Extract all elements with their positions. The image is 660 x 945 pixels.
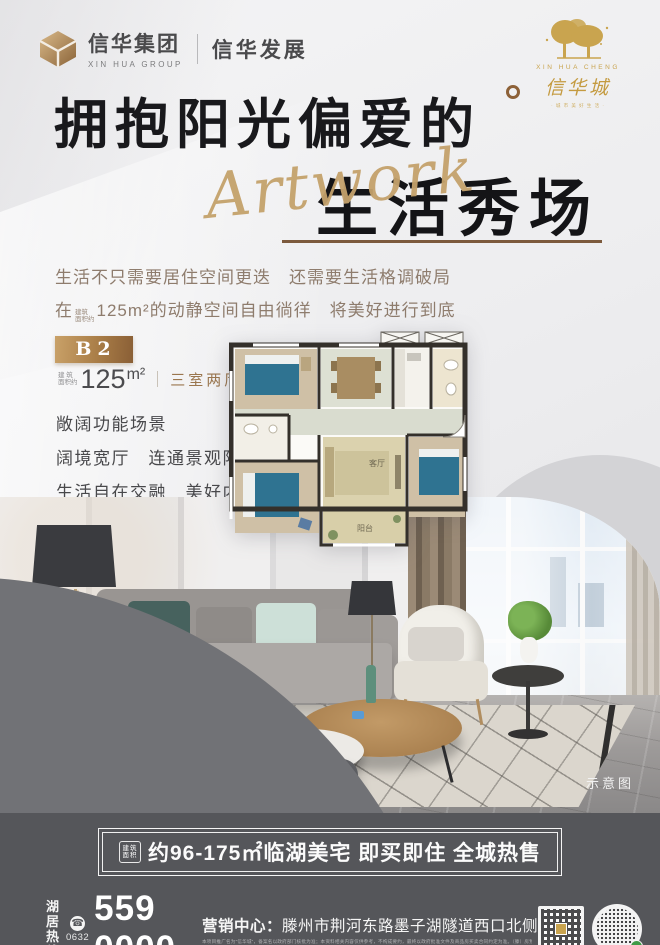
intro-line1: 生活不只需要居住空间更迭 还需要生活格调破局 [55, 261, 456, 294]
bedroom-bottom-right [409, 437, 465, 517]
sales-banner: 建筑 面积 约96-175㎡临湖美宅 即买即住 全城热售 [98, 828, 562, 876]
area-badge: 建筑 面积 [119, 841, 141, 863]
group-name-en: XIN HUA GROUP [88, 60, 183, 69]
area-note: 建 筑 面积约 [58, 372, 78, 386]
floor-lamp [32, 525, 116, 587]
project-name-en: XIN HUA CHENG [518, 64, 638, 71]
dining-area [321, 349, 391, 407]
sales-office-address: 滕州市荆河东路墨子湖隧道西口北侧 [282, 918, 538, 935]
gold-trees-icon [535, 14, 621, 64]
division-name: 信华发展 [212, 34, 308, 64]
project-name: 信华城 [518, 73, 638, 100]
poster-page: 信华集团 XIN HUA GROUP 信华发展 XIN HUA CHENG 信华 [0, 0, 660, 945]
living-room: 客厅 [323, 437, 405, 509]
floorplan: 客厅 阳台 [229, 331, 473, 549]
project-tagline: · 城 市 美 好 生 活 · [518, 103, 638, 109]
bathroom-left [235, 417, 289, 459]
small-floor-lamp [348, 581, 396, 615]
group-logo-icon [38, 29, 78, 69]
sales-office-label: 营销中心： [202, 918, 282, 935]
group-name-block: 信华集团 XIN HUA GROUP [88, 28, 183, 69]
floorplan-drawing: 客厅 阳台 [229, 331, 473, 549]
area-code: 0632 [66, 932, 89, 943]
unit-area-value: 125 [81, 364, 126, 395]
hotline-number: 559 0000 [94, 889, 176, 945]
bathroom-top-right [433, 349, 465, 407]
balcony: 阳台 [323, 511, 407, 543]
logo-divider [197, 34, 198, 64]
intro-line2: 在 建筑 面积约 125m² 的动静空间自由徜徉 将美好进行到底 [55, 294, 456, 327]
sales-banner-text: 约96-175㎡临湖美宅 即买即住 全城热售 [148, 837, 541, 867]
divider [157, 371, 158, 387]
photo-caption: 示意图 [586, 773, 634, 792]
intro-line2-suffix: 的动静空间自由徜徉 将美好进行到底 [150, 294, 456, 327]
unit-badge: B2 [55, 336, 133, 363]
headline-underline [282, 240, 602, 243]
balcony-label: 阳台 [357, 523, 373, 533]
bedroom-bottom-left [235, 461, 319, 533]
bedroom-top-left [235, 349, 317, 415]
phone-icon: ☎ [70, 916, 85, 931]
contact-bar: 湖 居 热 线 ☎ 0632 559 0000 营销中心：滕州市荆河东路墨子湖隧… [46, 889, 640, 945]
intro-line2-prefix: 在 [55, 294, 73, 327]
kitchen [395, 349, 429, 407]
wechat-badge-icon [630, 940, 643, 945]
cup [352, 711, 364, 719]
brand-logo: 信华集团 XIN HUA GROUP 信华发展 [38, 28, 308, 69]
group-name: 信华集团 [88, 28, 183, 58]
living-room-label: 客厅 [369, 458, 385, 468]
potted-plant [508, 601, 552, 641]
qr-code [538, 906, 584, 945]
closet-boxes [381, 332, 463, 344]
project-emblem: XIN HUA CHENG 信华城 · 城 市 美 好 生 活 · [518, 14, 638, 109]
hotline-label: 湖 居 热 线 [46, 899, 62, 945]
intro-copy: 生活不只需要居住空间更迭 还需要生活格调破局 在 建筑 面积约 125m² 的动… [55, 261, 456, 327]
area-note: 建筑 面积约 [75, 309, 95, 323]
qr-code-round [592, 904, 642, 945]
intro-area-value: 125m² [97, 294, 150, 327]
legal-disclaimer: 本项目推广名为“信华城”，备案名以政府部门核批为准；本资料相关内容仅供参考，不构… [202, 939, 532, 945]
decor-vase [366, 665, 376, 703]
footer: 建筑 面积 约96-175㎡临湖美宅 即买即住 全城热售 湖 居 热 线 ☎ 0… [0, 813, 660, 945]
headline-ring-icon [506, 85, 520, 99]
unit-area-unit: m² [127, 366, 146, 384]
plant-vase [520, 637, 538, 663]
